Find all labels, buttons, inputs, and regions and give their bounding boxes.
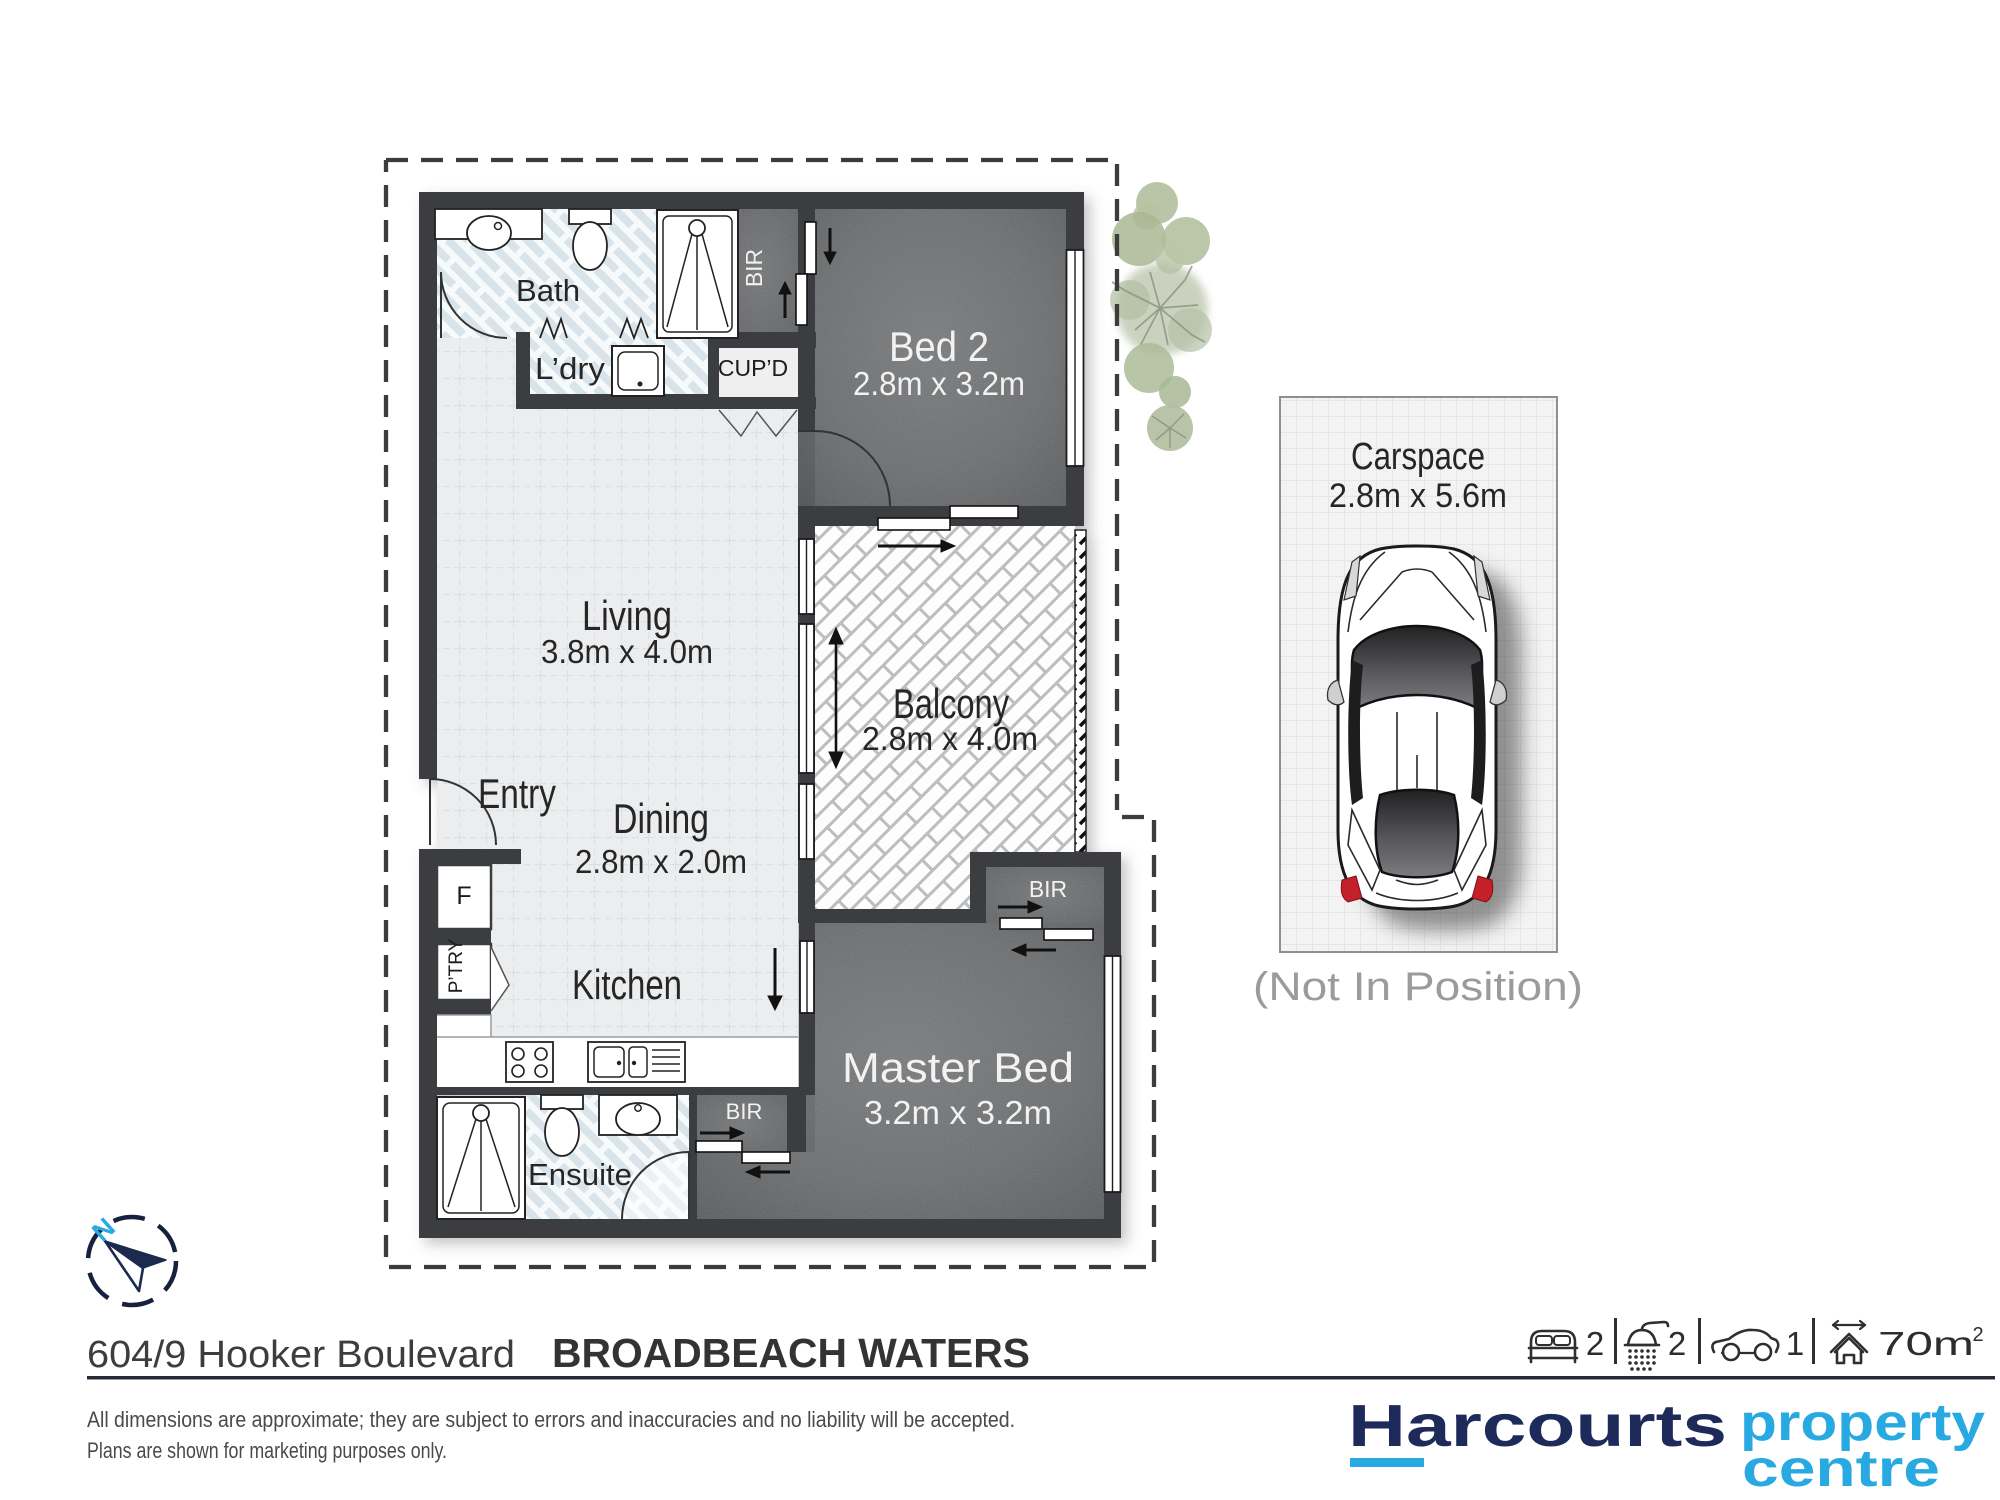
svg-text:(Not In Position): (Not In Position) (1253, 965, 1583, 1009)
svg-text:2: 2 (1972, 1324, 1983, 1346)
svg-text:BIR: BIR (726, 1099, 763, 1124)
svg-text:1: 1 (1786, 1325, 1804, 1362)
svg-text:Dining: Dining (613, 795, 709, 842)
svg-text:3.2m x 3.2m: 3.2m x 3.2m (864, 1094, 1052, 1131)
svg-text:Bed 2: Bed 2 (889, 323, 989, 370)
svg-text:CUP’D: CUP’D (718, 355, 788, 381)
svg-text:BROADBEACH WATERS: BROADBEACH WATERS (552, 1330, 1030, 1376)
svg-text:70m: 70m (1878, 1325, 1974, 1362)
svg-text:All dimensions are approximate: All dimensions are approximate; they are… (87, 1407, 1015, 1432)
svg-text:2.8m x 3.2m: 2.8m x 3.2m (853, 365, 1025, 402)
svg-text:2: 2 (1586, 1325, 1604, 1362)
svg-text:L’dry: L’dry (535, 351, 606, 386)
svg-text:Plans are shown for marketing: Plans are shown for marketing purposes o… (87, 1438, 447, 1463)
svg-text:centre: centre (1742, 1440, 1940, 1498)
svg-text:Living: Living (582, 592, 672, 639)
svg-text:Harcourts: Harcourts (1348, 1393, 1727, 1459)
svg-text:604/9 Hooker Boulevard: 604/9 Hooker Boulevard (87, 1334, 515, 1376)
svg-text:2.8m x 5.6m: 2.8m x 5.6m (1329, 477, 1507, 515)
svg-text:2.8m x 2.0m: 2.8m x 2.0m (575, 843, 747, 880)
svg-text:2: 2 (1668, 1325, 1686, 1362)
svg-text:3.8m x 4.0m: 3.8m x 4.0m (541, 633, 713, 670)
svg-text:Carspace: Carspace (1351, 436, 1485, 478)
svg-text:Ensuite: Ensuite (528, 1157, 632, 1192)
svg-text:BIR: BIR (741, 249, 767, 287)
svg-text:F: F (456, 882, 471, 910)
svg-text:P’TRY: P’TRY (446, 938, 467, 993)
svg-text:2.8m x 4.0m: 2.8m x 4.0m (862, 720, 1038, 757)
svg-text:Master Bed: Master Bed (842, 1044, 1074, 1091)
svg-text:Entry: Entry (478, 770, 556, 817)
svg-text:Kitchen: Kitchen (572, 961, 682, 1008)
svg-text:Bath: Bath (516, 273, 580, 308)
svg-text:BIR: BIR (1029, 876, 1067, 902)
